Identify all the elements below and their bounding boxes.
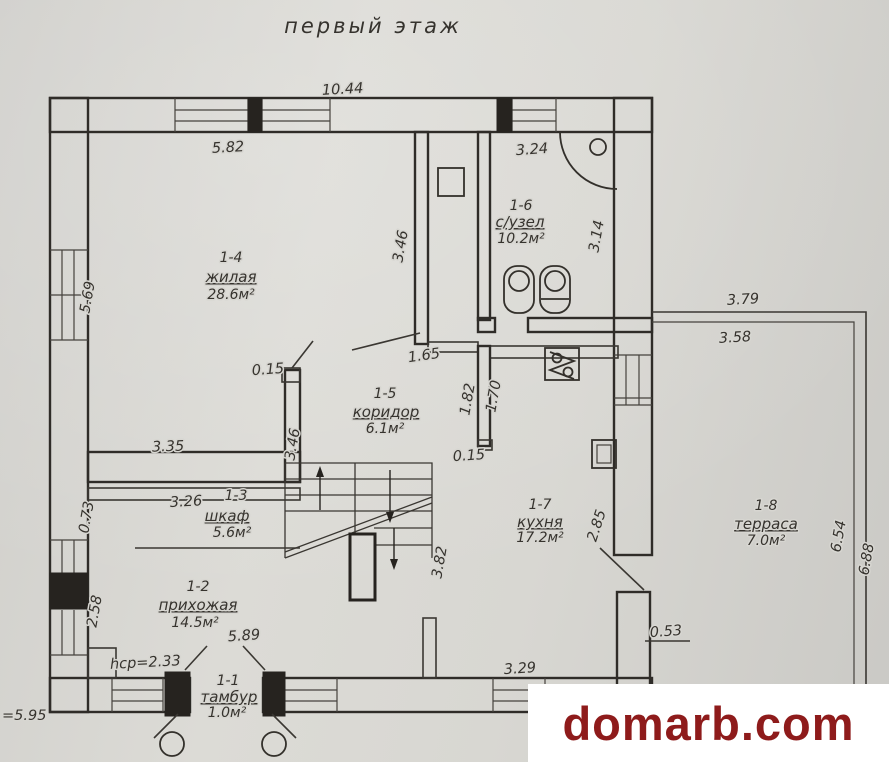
room-living-id: 1-4 [220,250,243,266]
room-bathroom-id: 1-6 [510,198,533,214]
room-closet-area: 5.6м² [213,525,252,541]
room-vestibule-name: тамбур [201,688,258,706]
watermark-banner: domarb.com [528,684,889,762]
scanned-floor-plan: первый этаж [0,0,889,762]
dim-bath-width: 3.24 [515,141,548,159]
room-terrace-id: 1-8 [755,498,778,514]
dim-living-left-height: 5.69 [77,280,98,315]
room-closet-id: 1-3 [225,488,248,504]
room-corridor-name: коридор [353,403,420,421]
room-label-hallway: 1-2 прихожая 14.5м² [159,579,238,631]
dim-kitchen-stub: 0.15 [452,447,485,465]
exterior-walls [50,98,652,712]
room-bathroom-area: 10.2м² [497,231,545,247]
room-bathroom-name: с/узел [496,213,545,231]
room-closet-name: шкаф [205,507,250,525]
dim-hall-width: 5.89 [227,627,260,645]
room-terrace-area: 7.0м² [747,533,786,549]
room-vestibule-id: 1-1 [217,673,240,689]
room-hallway-name: прихожая [159,596,238,614]
boiler-fixture [592,440,616,468]
porch-column [262,732,286,756]
dimension-labels: 10.44 5.82 3.24 3.14 3.46 5.69 3.35 0.15… [2,81,878,724]
dim-closet-width: 3.26 [170,493,203,511]
room-terrace-name: терраса [734,515,798,533]
room-vestibule-area: 1.0м² [208,705,247,721]
dim-ceiling-note: hcp=2.33 [110,653,182,673]
dim-terrace-right-inner: 6.54 [828,519,849,554]
room-kitchen-name: кухня [517,513,563,531]
dim-kitchen-notch: 0.53 [649,623,682,641]
wall-piers [50,98,512,716]
porch-column [160,732,184,756]
room-hallway-id: 1-2 [187,579,210,595]
page-title: первый этаж [284,14,462,38]
dim-closet-depth: 0.73 [76,500,97,535]
staircase [285,463,432,600]
duct-block [438,168,464,196]
room-living-name: жилая [204,268,256,286]
dim-terrace-top-inner: 3.58 [718,329,751,347]
dim-living-bottom: 3.35 [152,439,185,456]
room-living-area: 28.6м² [207,287,255,303]
dim-kitchen-right-height: 2.85 [585,508,610,544]
room-kitchen-area: 17.2м² [516,530,564,546]
dim-terrace-top-outer: 3.79 [726,291,759,309]
room-label-bathroom: 1-6 с/узел 10.2м² [496,198,546,247]
room-corridor-area: 6.1м² [366,421,405,437]
shower-fixture [560,132,617,189]
room-label-closet: 1-3 шкаф 5.6м² [205,488,252,541]
dim-kitchen-wall-upper: 1.82 [457,382,478,417]
dim-corridor-stub: 0.15 [251,361,284,379]
room-label-living: 1-4 жилая 28.6м² [204,250,256,303]
floor-plan-canvas: первый этаж [0,0,889,762]
dim-corridor-top: 1.65 [407,346,441,366]
room-kitchen-id: 1-7 [529,497,552,513]
room-hallway-area: 14.5м² [171,615,219,631]
room-label-kitchen: 1-7 кухня 17.2м² [516,497,564,546]
shower-drain [590,139,606,155]
dim-terrace-right-outer: 6.88 [856,542,877,577]
toilet-fixture [504,266,534,313]
watermark-text: domarb.com [562,696,854,751]
room-label-corridor: 1-5 коридор 6.1м² [353,386,420,437]
dim-living-right-height: 3.46 [390,229,411,264]
dim-left-note: =5.95 [2,708,46,724]
kitchen-sink-fixture [545,348,579,380]
room-corridor-id: 1-5 [374,386,397,402]
dim-bath-right-height: 3.14 [586,219,607,254]
room-label-terrace: 1-8 терраса 7.0м² [734,498,798,549]
window-symbols [50,98,652,712]
dim-living-width: 5.82 [211,139,244,157]
dim-kitchen-bottom: 3.29 [503,660,536,678]
dim-overall-top: 10.44 [321,81,363,99]
sink-fixture [540,266,570,313]
dim-kitchen-wall-inner: 1.70 [483,379,504,414]
room-label-vestibule: 1-1 тамбур 1.0м² [201,673,258,721]
